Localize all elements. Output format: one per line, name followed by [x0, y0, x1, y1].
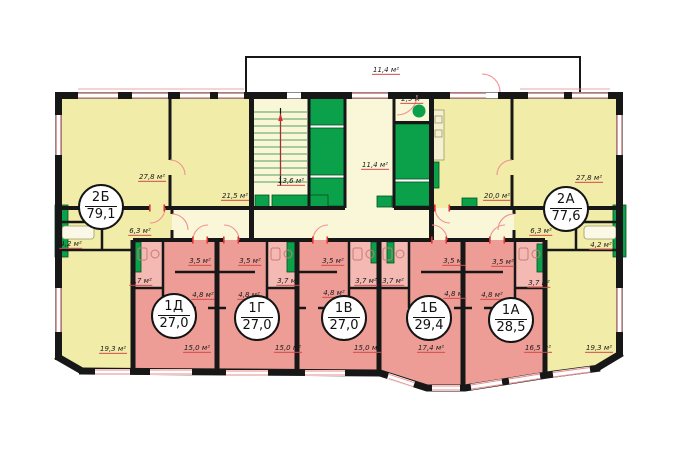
room-area-label-balcony: 11,4 м²	[372, 67, 400, 75]
room-area-label-1d-kitchen: 3,5 м²	[188, 258, 211, 266]
room-area-label-1d-bath: 3,7 м²	[129, 278, 152, 286]
room-area-label-1v-kitchen: 3,5 м²	[321, 258, 344, 266]
apartment-badge-1d: 1Д 27,0	[151, 293, 197, 339]
room-area-label-1d-living: 15,0 м²	[183, 345, 211, 353]
room-area-label-lobby: 11,4 м²	[361, 162, 389, 170]
apartment-total-area: 27,0	[330, 318, 359, 334]
room-area-label-2a-kitchen: 20,0 м²	[483, 193, 511, 201]
room-area-label-1v-living: 15,0 м²	[353, 345, 381, 353]
room-area-label-1d-hall: 4,8 м²	[191, 292, 214, 300]
room-area-label-2a-bath: 4,2 м²	[589, 242, 612, 250]
room-area-label-2b-kitchen: 21,5 м²	[221, 193, 249, 201]
room-area-label-1bb-hall: 4,8 м²	[443, 291, 466, 299]
labels-layer: 2Б 79,1 2А 77,6 1Д 27,0 1Г 27,0 1В 27,0 …	[0, 0, 681, 454]
room-area-label-2b-bedroom: 19,3 м²	[99, 346, 127, 354]
room-area-label-1g-living: 15,0 м²	[274, 345, 302, 353]
room-area-label-stairs: 13,6 м²	[277, 178, 305, 186]
room-area-label-1a-bath: 3,7 м²	[527, 280, 550, 288]
room-area-label-1bb-bath: 3,7 м²	[381, 278, 404, 286]
room-area-label-1g-bath: 3,7 м²	[276, 278, 299, 286]
room-area-label-1a-kitchen: 3,5 м²	[491, 259, 514, 267]
room-area-label-2b-bath: 4,2 м²	[59, 241, 82, 249]
apartment-total-area: 79,1	[87, 207, 116, 223]
apartment-total-area: 77,6	[552, 209, 581, 225]
room-area-label-vestibule: 2,9 м²	[400, 96, 423, 104]
room-area-label-1a-living: 16,5 м²	[524, 345, 552, 353]
apartment-id: 2А	[550, 193, 581, 209]
apartment-id: 1Б	[413, 302, 444, 318]
apartment-total-area: 27,0	[160, 316, 189, 332]
room-area-label-2a-bedroom: 19,3 м²	[585, 345, 613, 353]
room-area-label-1bb-kitchen: 3,5 м²	[442, 258, 465, 266]
apartment-id: 1Г	[241, 302, 272, 318]
room-area-label-2a-hall: 6,3 м²	[529, 228, 552, 236]
apartment-id: 1А	[495, 304, 526, 320]
room-area-label-2b-hall: 6,3 м²	[128, 228, 151, 236]
apartment-badge-1bb: 1Б 29,4	[406, 295, 452, 341]
apartment-id: 1Д	[158, 300, 189, 316]
apartment-badge-1g: 1Г 27,0	[234, 295, 280, 341]
apartment-id: 2Б	[85, 191, 116, 207]
apartment-badge-2b: 2Б 79,1	[78, 184, 124, 230]
room-area-label-2b-living: 27,8 м²	[138, 174, 166, 182]
apartment-id: 1В	[328, 302, 359, 318]
room-area-label-1g-kitchen: 3,5 м²	[238, 258, 261, 266]
room-area-label-1bb-living: 17,4 м²	[417, 345, 445, 353]
apartment-badge-1a: 1А 28,5	[488, 297, 534, 343]
apartment-total-area: 29,4	[415, 318, 444, 334]
room-area-label-2a-living: 27,8 м²	[575, 175, 603, 183]
floor-plan: 2Б 79,1 2А 77,6 1Д 27,0 1Г 27,0 1В 27,0 …	[0, 0, 681, 454]
apartment-badge-1v: 1В 27,0	[321, 295, 367, 341]
apartment-total-area: 27,0	[243, 318, 272, 334]
apartment-total-area: 28,5	[497, 320, 526, 336]
apartment-badge-2a: 2А 77,6	[543, 186, 589, 232]
room-area-label-1v-bath: 3,7 м²	[354, 278, 377, 286]
